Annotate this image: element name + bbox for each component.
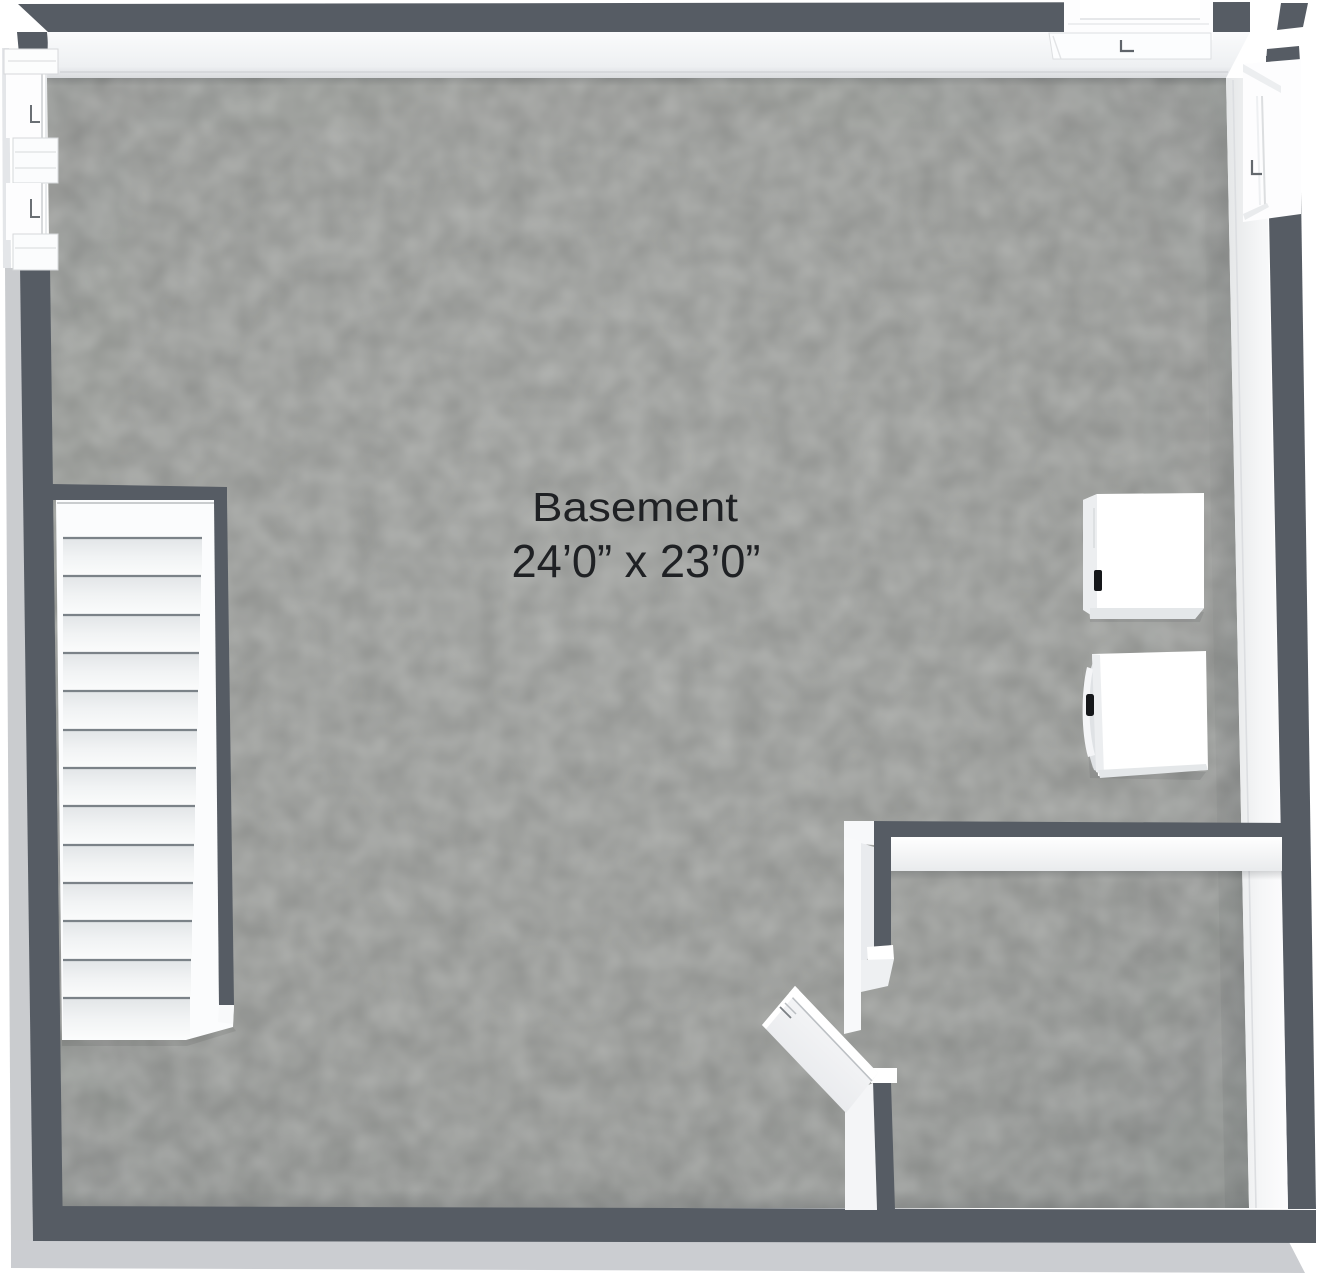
svg-text:24’0” x 23’0”: 24’0” x 23’0”: [512, 535, 761, 587]
svg-text:Basement: Basement: [532, 484, 739, 530]
